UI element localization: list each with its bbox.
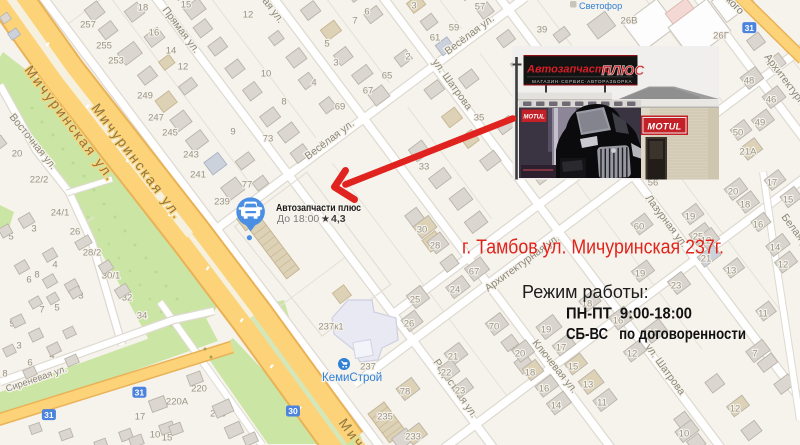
svg-text:18: 18 — [138, 2, 149, 13]
svg-text:10: 10 — [679, 428, 690, 439]
svg-text:33: 33 — [419, 161, 430, 172]
svg-text:28/2: 28/2 — [83, 247, 102, 258]
svg-text:46: 46 — [766, 94, 777, 105]
svg-text:15: 15 — [181, 0, 192, 10]
svg-text:5: 5 — [324, 38, 329, 49]
svg-text:26В: 26В — [621, 15, 638, 26]
svg-text:17: 17 — [556, 342, 567, 353]
svg-text:9: 9 — [230, 126, 235, 137]
svg-text:11: 11 — [597, 397, 607, 408]
svg-text:20: 20 — [728, 186, 739, 197]
svg-text:10: 10 — [261, 68, 272, 79]
svg-text:3: 3 — [411, 0, 416, 11]
svg-text:34: 34 — [137, 310, 148, 321]
svg-text:8: 8 — [2, 368, 7, 379]
svg-text:СБ-ВС по договоренности: СБ-ВС по договоренности — [566, 326, 746, 343]
svg-text:220А: 220А — [166, 396, 189, 407]
svg-text:17: 17 — [767, 177, 778, 188]
svg-text:MOTUL: MOTUL — [523, 115, 545, 121]
svg-text:61: 61 — [430, 32, 441, 43]
svg-text:Светофор: Светофор — [579, 1, 622, 11]
svg-text:253: 253 — [108, 55, 124, 66]
svg-text:ПН-ПТ 9:00-18:00: ПН-ПТ 9:00-18:00 — [566, 306, 692, 323]
svg-text:77: 77 — [242, 179, 253, 190]
svg-text:ПЛЮС: ПЛЮС — [602, 63, 645, 78]
svg-text:MOTUL: MOTUL — [647, 122, 681, 132]
svg-text:14: 14 — [551, 400, 562, 411]
svg-text:24/1: 24/1 — [51, 207, 70, 218]
svg-text:67: 67 — [469, 266, 480, 277]
svg-text:5: 5 — [54, 302, 59, 313]
svg-text:30: 30 — [288, 406, 298, 416]
svg-text:255: 255 — [96, 40, 112, 51]
svg-text:237: 237 — [360, 361, 376, 372]
svg-text:239: 239 — [214, 196, 230, 207]
svg-text:11: 11 — [758, 308, 768, 319]
svg-text:23: 23 — [671, 280, 682, 291]
svg-text:★: ★ — [321, 214, 330, 225]
svg-text:4,3: 4,3 — [331, 213, 346, 225]
svg-text:Режим работы:: Режим работы: — [522, 282, 649, 302]
svg-text:65: 65 — [382, 70, 393, 81]
svg-text:7: 7 — [39, 304, 44, 315]
svg-text:235: 235 — [377, 411, 393, 422]
svg-text:4: 4 — [52, 259, 57, 270]
svg-text:12: 12 — [778, 259, 789, 270]
svg-text:26: 26 — [404, 318, 415, 329]
svg-text:7: 7 — [352, 15, 357, 26]
svg-text:241: 241 — [190, 169, 206, 180]
svg-text:12: 12 — [178, 61, 189, 72]
svg-text:20: 20 — [515, 348, 526, 359]
svg-text:25: 25 — [410, 294, 421, 305]
svg-text:249: 249 — [137, 90, 153, 101]
svg-text:22/2: 22/2 — [30, 174, 49, 185]
svg-text:50: 50 — [733, 127, 744, 138]
svg-text:19: 19 — [685, 211, 696, 222]
svg-text:15: 15 — [783, 194, 794, 205]
svg-text:18: 18 — [525, 367, 536, 378]
svg-text:243: 243 — [183, 149, 199, 160]
svg-text:22: 22 — [441, 367, 452, 378]
svg-text:6: 6 — [364, 6, 369, 17]
svg-text:237к1: 237к1 — [318, 321, 343, 332]
svg-text:16: 16 — [149, 27, 160, 38]
svg-text:10: 10 — [150, 429, 161, 440]
svg-text:3: 3 — [31, 223, 36, 234]
svg-text:КемиСтрой: КемиСтрой — [322, 372, 382, 384]
svg-text:24: 24 — [450, 284, 461, 295]
svg-text:70: 70 — [489, 321, 500, 332]
svg-text:МАГАЗИН·СЕРВИС·АВТОРАЗБОРКА: МАГАЗИН·СЕРВИС·АВТОРАЗБОРКА — [532, 79, 632, 84]
svg-text:12: 12 — [243, 9, 254, 20]
svg-text:14: 14 — [770, 242, 781, 253]
svg-text:69: 69 — [335, 101, 346, 112]
svg-text:8: 8 — [34, 269, 39, 280]
svg-text:28: 28 — [430, 240, 441, 251]
svg-text:73: 73 — [263, 133, 274, 144]
svg-text:13: 13 — [726, 265, 737, 276]
svg-text:4: 4 — [311, 77, 316, 88]
svg-text:57: 57 — [475, 1, 486, 12]
svg-text:18: 18 — [740, 199, 751, 210]
svg-text:19: 19 — [541, 324, 552, 335]
svg-text:г. Тамбов ул. Мичуринская 237г: г. Тамбов ул. Мичуринская 237г. — [462, 236, 724, 259]
svg-text:26: 26 — [70, 226, 81, 237]
svg-text:78: 78 — [400, 386, 411, 397]
svg-text:35: 35 — [474, 112, 485, 123]
svg-text:20: 20 — [12, 148, 23, 159]
svg-text:19: 19 — [635, 268, 646, 279]
svg-text:67: 67 — [363, 85, 374, 96]
svg-text:8: 8 — [281, 96, 286, 107]
svg-text:23: 23 — [455, 385, 466, 396]
svg-text:14: 14 — [166, 45, 177, 56]
svg-text:60: 60 — [634, 221, 645, 232]
svg-text:16: 16 — [539, 383, 550, 394]
svg-text:2: 2 — [405, 51, 410, 62]
svg-text:48: 48 — [744, 75, 755, 86]
svg-text:31: 31 — [135, 387, 145, 397]
svg-text:21А: 21А — [740, 146, 758, 157]
svg-text:15: 15 — [568, 361, 579, 372]
svg-text:31: 31 — [44, 410, 54, 420]
svg-text:3: 3 — [333, 57, 338, 68]
svg-text:233: 233 — [405, 431, 421, 442]
svg-text:39: 39 — [537, 24, 548, 35]
svg-text:30: 30 — [417, 224, 428, 235]
svg-text:12: 12 — [730, 403, 741, 414]
svg-text:31: 31 — [745, 23, 755, 33]
svg-text:До 18:00: До 18:00 — [277, 213, 319, 225]
svg-text:257: 257 — [80, 19, 96, 30]
svg-text:13: 13 — [583, 379, 594, 390]
svg-text:16: 16 — [753, 219, 764, 230]
svg-text:7: 7 — [752, 348, 757, 359]
svg-text:Автозапчасти: Автозапчасти — [526, 64, 612, 76]
svg-text:21: 21 — [448, 351, 459, 362]
svg-text:59: 59 — [449, 22, 460, 33]
svg-text:12: 12 — [627, 348, 638, 359]
svg-text:3: 3 — [16, 340, 21, 351]
svg-text:26Г: 26Г — [713, 30, 729, 41]
svg-text:49: 49 — [755, 117, 766, 128]
svg-text:17: 17 — [135, 411, 146, 422]
svg-text:6: 6 — [26, 274, 31, 285]
svg-text:247: 247 — [148, 112, 164, 123]
svg-text:245: 245 — [162, 127, 178, 138]
